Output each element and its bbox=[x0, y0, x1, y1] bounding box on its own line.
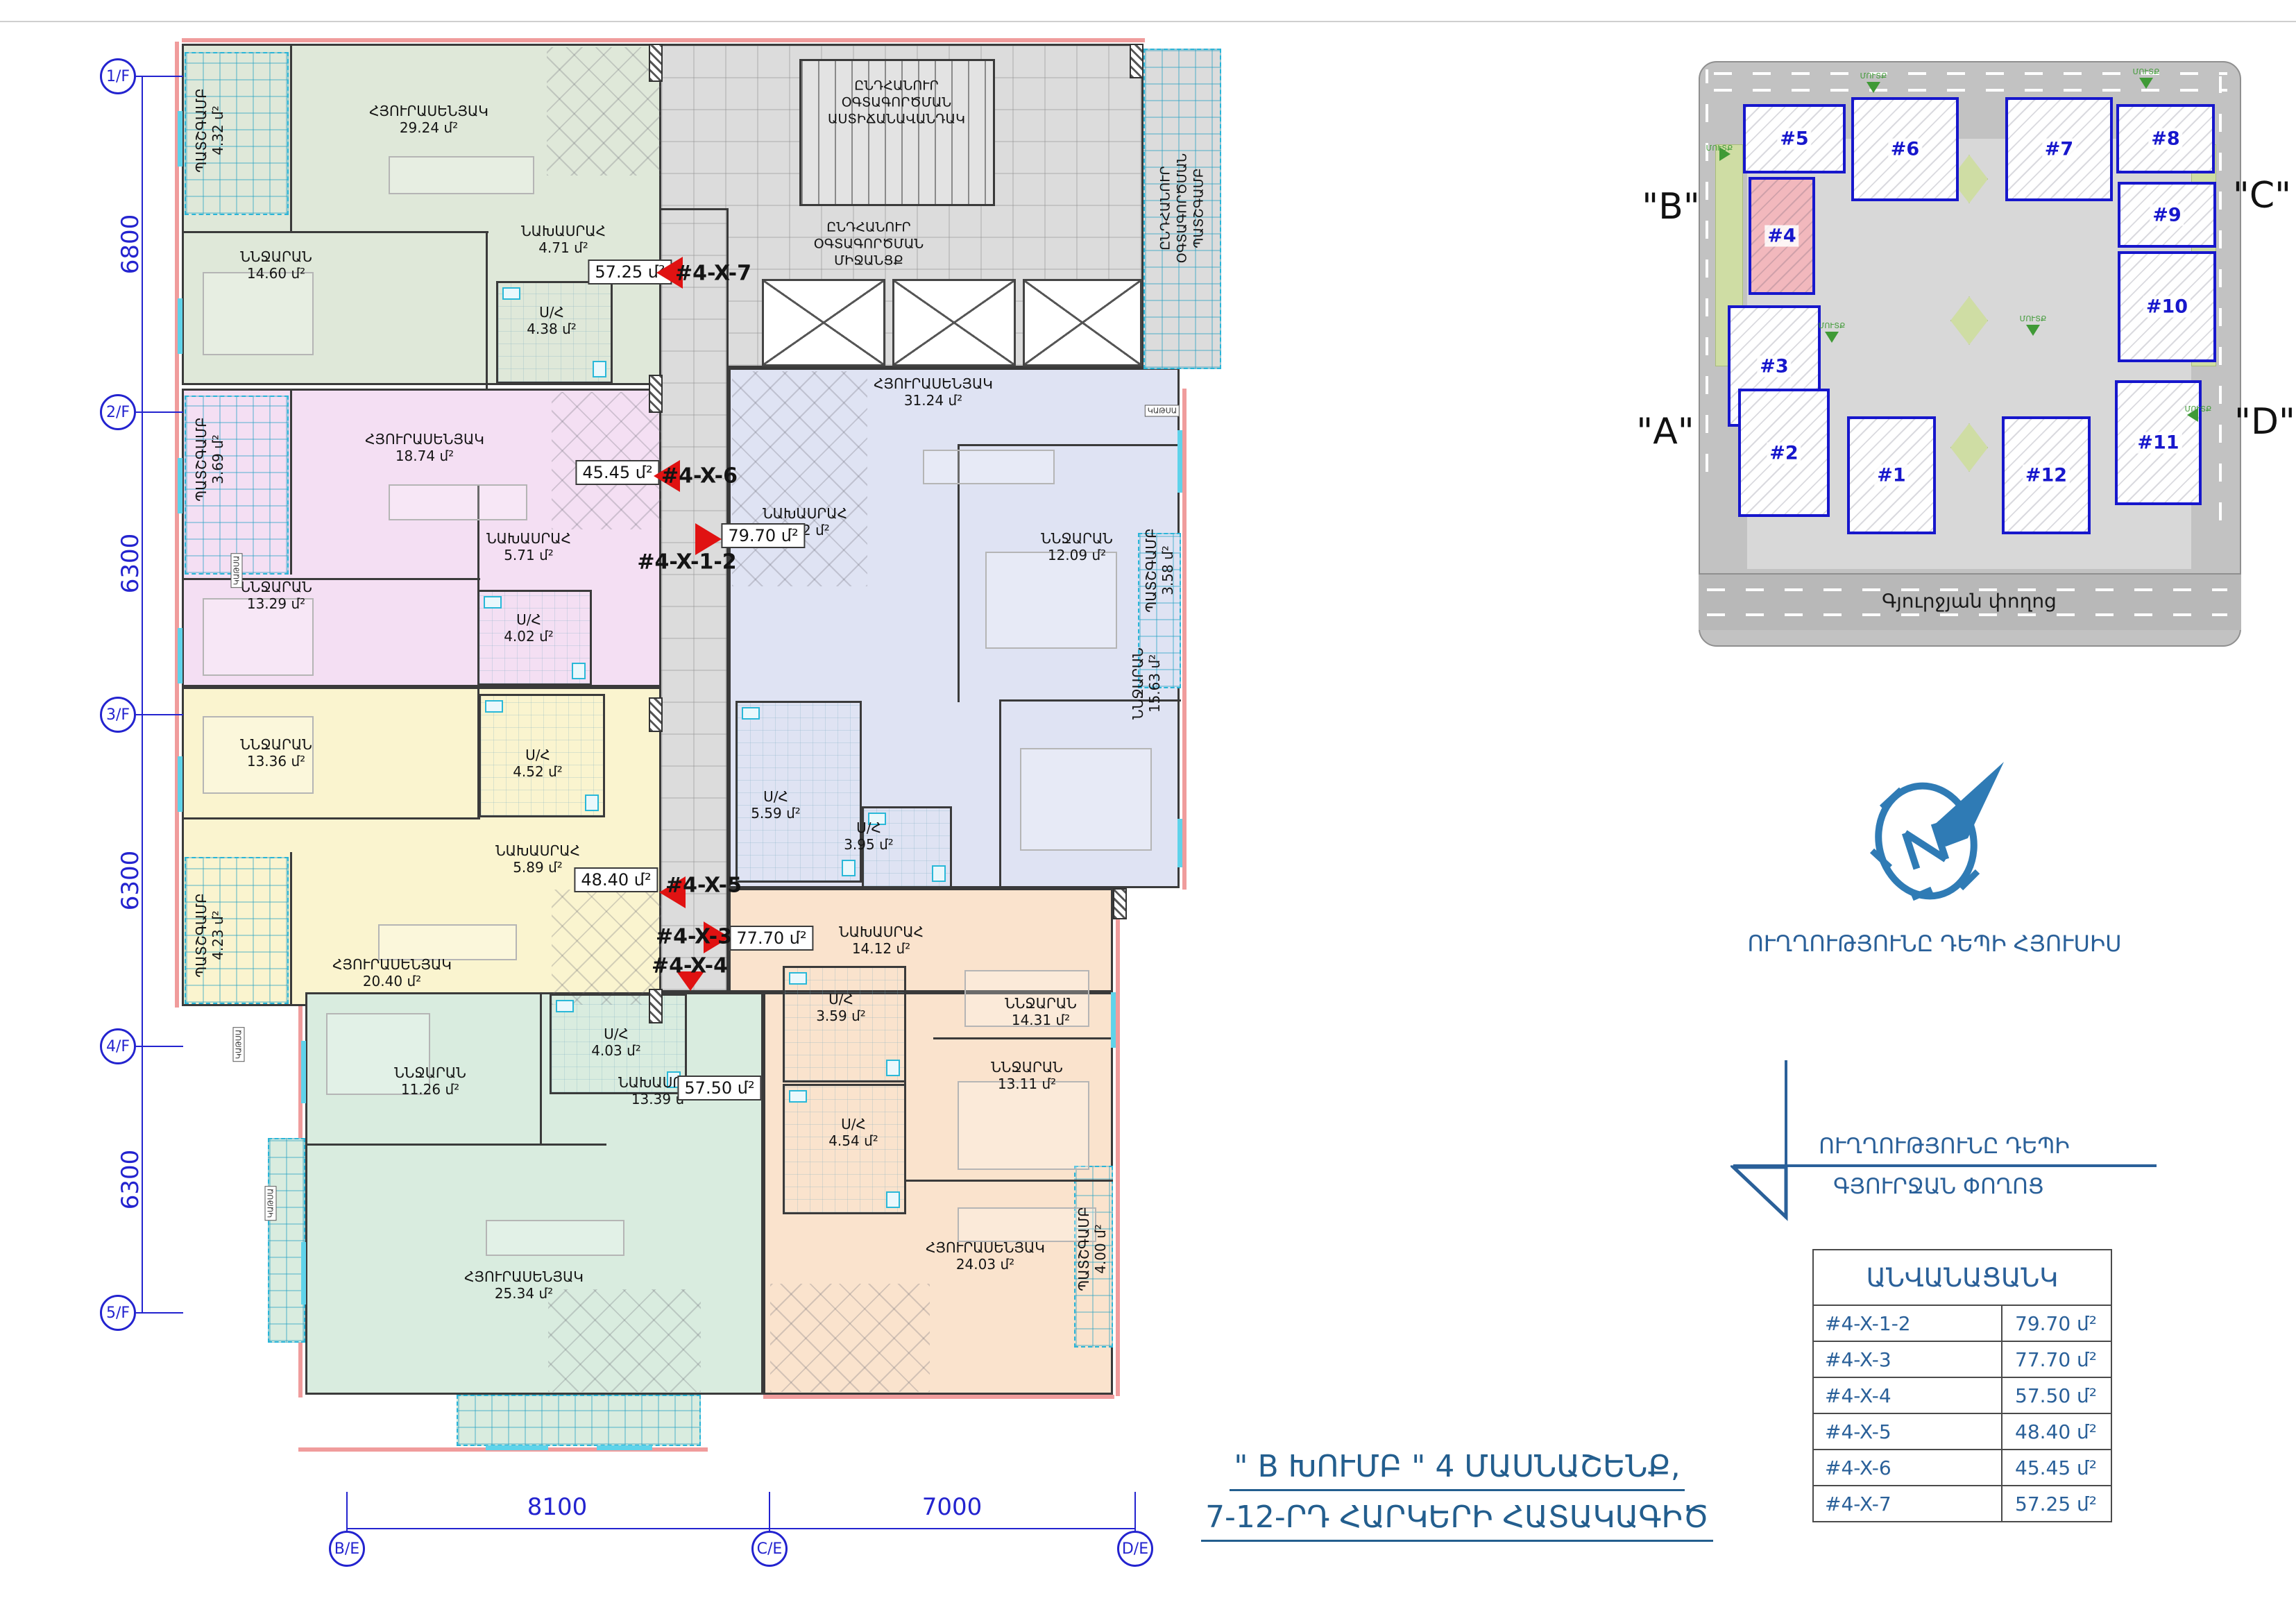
exterior-wall-accent bbox=[763, 1395, 1114, 1399]
axis-tick bbox=[136, 714, 183, 715]
dimension-label: 6300 bbox=[117, 851, 144, 911]
apartment-total-area: 79.70 մ² bbox=[721, 523, 805, 548]
room-label: Ս/Հ4.02 մ² bbox=[504, 611, 554, 645]
site-building-label: #10 bbox=[2143, 296, 2191, 318]
dimension-label: 6800 bbox=[117, 214, 144, 275]
site-building-label: #1 bbox=[1874, 465, 1908, 486]
interior-wall bbox=[904, 966, 906, 1181]
unit-id-label: #4-X-7 bbox=[675, 262, 751, 286]
room-name: Ս/Հ bbox=[504, 611, 554, 628]
street-direction-arrowhead bbox=[1730, 1164, 1790, 1221]
interior-wall bbox=[540, 994, 542, 1145]
room-area: 13.29 մ² bbox=[240, 595, 312, 612]
room-label: ՆՆՋԱՐԱՆ13.36 մ² bbox=[240, 736, 312, 770]
kitchen-floor-hatch bbox=[547, 47, 661, 176]
room-area: 13.36 մ² bbox=[240, 753, 312, 770]
window-marker bbox=[597, 1445, 652, 1450]
axis-tick bbox=[1134, 1492, 1136, 1531]
room-area: 5.59 մ² bbox=[751, 805, 801, 822]
room-name: ՊԱՏՇԳԱՄԲ bbox=[1143, 528, 1159, 612]
interior-wall bbox=[999, 699, 1001, 888]
furniture-outline bbox=[1020, 748, 1152, 851]
window-marker bbox=[486, 1445, 548, 1450]
room-label: ՆՆՋԱՐԱՆ13.11 մ² bbox=[991, 1059, 1063, 1092]
street-direction-line2: ԳՅՈՒՐՋԱՆ ՓՈՂՈՑ bbox=[1833, 1174, 2044, 1199]
site-building-label: #2 bbox=[1767, 442, 1801, 464]
room-label: ՆՆՋԱՐԱՆ11.26 մ² bbox=[394, 1064, 466, 1098]
sink-icon bbox=[556, 1000, 574, 1012]
axis-marker-5-F: 5/F bbox=[100, 1295, 136, 1331]
exterior-wall-accent bbox=[175, 42, 179, 1008]
axis-tick bbox=[136, 1046, 183, 1047]
structural-column bbox=[1113, 888, 1127, 919]
room-area: 3.95 մ² bbox=[844, 836, 894, 853]
room-label: ՀՅՈՒՐԱՍԵՆՅԱԿ20.40 մ² bbox=[332, 956, 452, 989]
dimension-label: 8100 bbox=[527, 1493, 588, 1521]
legend-row: #4-X-1-279.70 մ² bbox=[1814, 1306, 2111, 1342]
room-label: ՆՆՋԱՐԱՆ13.29 մ² bbox=[240, 579, 312, 612]
unit-id-label: #4-X-6 bbox=[661, 464, 738, 488]
room-label: ՊԱՏՇԳԱՄԲ3.58 մ² bbox=[1143, 528, 1176, 612]
room-area: 4.03 մ² bbox=[591, 1042, 641, 1059]
window-marker bbox=[1177, 430, 1182, 493]
entrance-text: ՄՈՒՏՔ bbox=[2020, 314, 2047, 323]
apartment-total-area: 45.45 մ² bbox=[575, 460, 659, 485]
room-label: Ս/Հ3.59 մ² bbox=[816, 991, 866, 1024]
room-label: Ս/Հ4.54 մ² bbox=[828, 1116, 878, 1149]
room-label: ՀՅՈՒՐԱՍԵՆՅԱԿ31.24 մ² bbox=[874, 375, 993, 409]
room-name: ՊԱՏՇԳԱՄԲ bbox=[193, 417, 210, 501]
room-area: 4.71 մ² bbox=[521, 239, 606, 256]
balcony-area bbox=[268, 1138, 305, 1343]
legend-header: ԱՆՎԱՆԱՑԱՆԿ bbox=[1814, 1250, 2111, 1306]
interior-wall bbox=[933, 1037, 1113, 1039]
quadrant-label: "D" bbox=[2234, 401, 2295, 443]
room-label: Ս/Հ3.95 մ² bbox=[844, 819, 894, 853]
compass-icon bbox=[1848, 749, 2022, 923]
room-name: ՊԱՏՇԳԱՄԲ bbox=[193, 88, 210, 172]
legend-row: #4-X-757.25 մ² bbox=[1814, 1486, 2111, 1521]
room-area: 4.02 մ² bbox=[504, 628, 554, 645]
room-name: Ս/Հ bbox=[527, 304, 577, 321]
room-name: ՀՅՈՒՐԱՍԵՆՅԱԿ bbox=[926, 1239, 1045, 1256]
furniture-outline bbox=[486, 1220, 624, 1256]
window-marker bbox=[1177, 819, 1182, 867]
room-label: ՆԱԽԱՍՐԱՀ5.89 մ² bbox=[495, 842, 580, 876]
sink-icon bbox=[789, 1090, 807, 1103]
quadrant-label: "C" bbox=[2233, 175, 2291, 216]
furniture-outline bbox=[985, 552, 1117, 649]
toilet-icon bbox=[842, 860, 856, 876]
room-name: ՀՅՈՒՐԱՍԵՆՅԱԿ bbox=[332, 956, 452, 973]
dimension-label: 7000 bbox=[922, 1493, 983, 1521]
road-lane-dashes bbox=[1714, 89, 2227, 92]
boiler-label: ԿԱԹՍԱ bbox=[231, 553, 243, 588]
legend-row: #4-X-457.50 մ² bbox=[1814, 1378, 2111, 1414]
entrance-arrow-icon bbox=[1825, 332, 1839, 343]
axis-marker-1-F: 1/F bbox=[100, 58, 136, 94]
room-label: ՆԱԽԱՍՐԱՀ5.71 մ² bbox=[486, 530, 571, 563]
boiler-label: ԿԱԹՍԱ bbox=[233, 1027, 245, 1062]
structural-column bbox=[649, 697, 663, 732]
room-name: Ս/Հ bbox=[751, 788, 801, 805]
north-direction-label: ՈՒՂՂՈՒԹՅՈՒՆԸ ԴԵՊԻ ՀՅՈՒՍԻՍ bbox=[1748, 931, 2122, 957]
room-area: 3.59 մ² bbox=[816, 1008, 866, 1024]
room-label: ՀՅՈՒՐԱՍԵՆՅԱԿ24.03 մ² bbox=[926, 1239, 1045, 1273]
room-label: ՊԱՏՇԳԱՄԲ4.23 մ² bbox=[193, 893, 226, 977]
room-name: Ս/Հ bbox=[591, 1026, 641, 1042]
interior-wall bbox=[290, 852, 292, 1006]
interior-wall bbox=[958, 444, 1181, 446]
room-area: 29.24 մ² bbox=[369, 119, 488, 136]
interior-wall bbox=[182, 817, 480, 819]
unit-id-label: #4-X-5 bbox=[665, 874, 742, 898]
legend-unit-id: #4-X-1-2 bbox=[1814, 1306, 2002, 1341]
room-area: 4.23 մ² bbox=[210, 893, 226, 977]
exterior-wall-accent bbox=[182, 38, 665, 42]
furniture-outline bbox=[923, 450, 1055, 484]
room-area: 4.38 մ² bbox=[527, 321, 577, 337]
elevator-shaft bbox=[1023, 279, 1142, 366]
structural-column bbox=[649, 375, 663, 413]
apartment-total-area: 57.50 մ² bbox=[677, 1076, 761, 1101]
room-area: 12.09 մ² bbox=[1041, 547, 1113, 563]
room-area: 13.11 մ² bbox=[991, 1076, 1063, 1092]
room-area: 3.69 մ² bbox=[210, 417, 226, 501]
room-name: ՀՅՈՒՐԱՍԵՆՅԱԿ bbox=[369, 103, 488, 119]
room-name: ՀՅՈՒՐԱՍԵՆՅԱԿ bbox=[464, 1268, 584, 1285]
interior-wall bbox=[182, 578, 480, 580]
room-name: ՆՆՋԱՐԱՆ bbox=[240, 579, 312, 595]
furniture-outline bbox=[389, 484, 527, 520]
room-label: ՆԱԽԱՍՐԱՀ4.71 մ² bbox=[521, 223, 606, 256]
interior-wall bbox=[290, 44, 292, 232]
sheet-canvas: ԸՆԴՀԱՆՈՒՐ ՕԳՏԱԳՈՐԾՄԱՆ ԱՍՏԻՃԱՆԱՎԱՆԴԱԿԸՆԴՀ… bbox=[0, 0, 2296, 1623]
exterior-wall-accent bbox=[1116, 891, 1120, 1396]
legend-table: ԱՆՎԱՆԱՑԱՆԿ #4-X-1-279.70 մ²#4-X-377.70 մ… bbox=[1812, 1249, 2112, 1522]
room-area: 5.89 մ² bbox=[495, 859, 580, 876]
window-marker bbox=[178, 458, 182, 513]
entrance-text: ՄՈՒՏՔ bbox=[2185, 405, 2212, 414]
room-area: 20.40 մ² bbox=[332, 973, 452, 989]
title-line2: 7-12-ՐԴ ՀԱՐԿԵՐԻ ՀԱՏԱԿԱԳԻԾ bbox=[1201, 1499, 1713, 1542]
room-area: 18.74 մ² bbox=[365, 448, 484, 464]
room-name: ՆՆՋԱՐԱՆ bbox=[991, 1059, 1063, 1076]
site-building-label: #8 bbox=[2148, 128, 2182, 150]
sink-icon bbox=[485, 700, 503, 713]
room-name: ՊԱՏՇԳԱՄԲ bbox=[193, 893, 210, 977]
room-area: 14.60 մ² bbox=[240, 265, 312, 282]
boiler-label: ԿԱԹՍԱ bbox=[265, 1186, 277, 1221]
room-area: 4.00 մ² bbox=[1092, 1207, 1109, 1291]
unit-id-label: #4-X-4 bbox=[652, 954, 728, 978]
bottom-axis-line bbox=[347, 1528, 1135, 1529]
common-balcony-label: ԸՆԴՀԱՆՈՒՐ ՕԳՏԱԳՈՐԾՄԱՆ ՊԱՏՇԳԱՄԲ bbox=[1157, 153, 1207, 263]
furniture-outline bbox=[389, 156, 534, 194]
room-area: 5.71 մ² bbox=[486, 547, 571, 563]
title-line1: " B ԽՈՒՄԲ " 4 ՄԱՍՆԱՇԵՆՔ, bbox=[1230, 1449, 1684, 1491]
window-marker bbox=[178, 628, 182, 683]
room-label: Ս/Հ4.52 մ² bbox=[513, 747, 563, 780]
room-name: ՆԱԽԱՍՐԱՀ bbox=[495, 842, 580, 859]
room-name: Ս/Հ bbox=[844, 819, 894, 836]
site-building-label: #11 bbox=[2134, 432, 2182, 454]
elevator-shaft bbox=[762, 279, 885, 366]
site-building-label: #4 bbox=[1764, 226, 1798, 247]
axis-tick bbox=[136, 76, 183, 77]
axis-marker-B-E: B/E bbox=[329, 1531, 365, 1567]
entrance-arrow-icon bbox=[2139, 78, 2153, 89]
kitchen-floor-hatch bbox=[548, 1289, 701, 1392]
room-label: Ս/Հ5.59 մ² bbox=[751, 788, 801, 822]
legend-rows: #4-X-1-279.70 մ²#4-X-377.70 մ²#4-X-457.5… bbox=[1814, 1306, 2111, 1521]
room-name: ՆԱԽԱՍՐԱՀ bbox=[486, 530, 571, 547]
street-direction-hline bbox=[1733, 1164, 2157, 1167]
corridor-label: ԸՆԴՀԱՆՈՒՐ ՕԳՏԱԳՈՐԾՄԱՆ ՄԻՋԱՆՑՔ bbox=[814, 219, 924, 269]
room-label: ՀՅՈՒՐԱՍԵՆՅԱԿ29.24 մ² bbox=[369, 103, 488, 136]
kitchen-floor-hatch bbox=[732, 371, 867, 586]
room-name: ՀՅՈՒՐԱՍԵՆՅԱԿ bbox=[365, 431, 484, 448]
site-building-label: #6 bbox=[1888, 139, 1922, 160]
quadrant-label: "B" bbox=[1642, 186, 1700, 228]
road-lane-dashes bbox=[2219, 76, 2222, 520]
legend-row: #4-X-645.45 մ² bbox=[1814, 1450, 2111, 1486]
boiler-label: ԿԱԹՍԱ bbox=[1145, 405, 1180, 417]
furniture-outline bbox=[378, 924, 517, 960]
toilet-icon bbox=[585, 794, 599, 811]
window-marker bbox=[1111, 992, 1116, 1048]
room-label: ՆՆՋԱՐԱՆ15.63 մ² bbox=[1130, 647, 1163, 720]
axis-tick bbox=[136, 1312, 183, 1314]
entrance-text: ՄՈՒՏՔ bbox=[2133, 67, 2160, 76]
balcony-area bbox=[457, 1395, 701, 1446]
room-name: ՆՆՋԱՐԱՆ bbox=[394, 1064, 466, 1081]
legend-unit-area: 77.70 մ² bbox=[2002, 1342, 2111, 1377]
exterior-wall-accent bbox=[659, 38, 1145, 42]
toilet-icon bbox=[932, 865, 946, 882]
room-area: 15.63 մ² bbox=[1146, 647, 1163, 720]
elevator-shaft bbox=[892, 279, 1016, 366]
dimension-label: 6300 bbox=[117, 534, 144, 594]
toilet-icon bbox=[886, 1060, 900, 1076]
compass bbox=[1848, 749, 2022, 923]
legend-unit-id: #4-X-4 bbox=[1814, 1378, 2002, 1413]
room-area: 31.24 մ² bbox=[874, 392, 993, 409]
road-lane-dashes bbox=[1706, 69, 1708, 472]
room-label: ՆՆՋԱՐԱՆ12.09 մ² bbox=[1041, 530, 1113, 563]
kitchen-floor-hatch bbox=[552, 890, 661, 1005]
apartment-total-area: 77.70 մ² bbox=[729, 926, 813, 951]
entrance-text: ՄՈՒՏՔ bbox=[1860, 71, 1887, 80]
legend-row: #4-X-548.40 մ² bbox=[1814, 1414, 2111, 1450]
window-marker bbox=[178, 756, 182, 812]
legend-unit-id: #4-X-7 bbox=[1814, 1486, 2002, 1521]
room-label: ՊԱՏՇԳԱՄԲ4.32 մ² bbox=[193, 88, 226, 172]
interior-wall bbox=[305, 1144, 606, 1146]
room-area: 14.31 մ² bbox=[1005, 1012, 1077, 1028]
legend-unit-id: #4-X-6 bbox=[1814, 1450, 2002, 1485]
bathroom-room bbox=[783, 1084, 906, 1214]
room-area: 3.58 մ² bbox=[1159, 528, 1176, 612]
room-label: Ս/Հ4.38 մ² bbox=[527, 304, 577, 337]
entrance-text: ՄՈՒՏՔ bbox=[1819, 321, 1846, 330]
room-label: ՆՆՋԱՐԱՆ14.31 մ² bbox=[1005, 995, 1077, 1028]
room-name: ՆՆՋԱՐԱՆ bbox=[240, 248, 312, 265]
room-area: 25.34 մ² bbox=[464, 1285, 584, 1302]
room-label: ՆՆՋԱՐԱՆ14.60 մ² bbox=[240, 248, 312, 282]
site-building-label: #9 bbox=[2150, 204, 2184, 226]
legend-row: #4-X-377.70 մ² bbox=[1814, 1342, 2111, 1378]
room-area: 4.54 մ² bbox=[828, 1132, 878, 1149]
interior-wall bbox=[477, 687, 479, 819]
room-name: ՆՆՋԱՐԱՆ bbox=[1041, 530, 1113, 547]
room-name: ՆԱԽԱՍՐԱՀ bbox=[763, 505, 847, 522]
staircase-label: ԸՆԴՀԱՆՈՒՐ ՕԳՏԱԳՈՐԾՄԱՆ ԱՍՏԻՃԱՆԱՎԱՆԴԱԿ bbox=[828, 78, 965, 127]
street-name-label: Գյուրջյան փողոց bbox=[1882, 590, 2057, 613]
structural-column bbox=[649, 44, 663, 82]
axis-tick bbox=[136, 411, 183, 413]
sink-icon bbox=[742, 707, 760, 720]
legend-unit-id: #4-X-5 bbox=[1814, 1414, 2002, 1449]
unit-id-label: #4-X-3 bbox=[656, 925, 732, 949]
legend-unit-area: 57.25 մ² bbox=[2002, 1486, 2111, 1521]
room-name: ՆԱԽԱՍՐԱՀ bbox=[839, 924, 924, 940]
room-name: ՊԱՏՇԳԱՄԲ bbox=[1075, 1207, 1092, 1291]
site-walkway bbox=[1939, 139, 2000, 569]
window-marker bbox=[301, 1041, 306, 1103]
legend-unit-area: 57.50 մ² bbox=[2002, 1378, 2111, 1413]
axis-marker-3-F: 3/F bbox=[100, 697, 136, 733]
bathroom-room bbox=[783, 966, 906, 1082]
unit-id-label: #4-X-1-2 bbox=[637, 550, 736, 575]
room-name: Ս/Հ bbox=[828, 1116, 878, 1132]
road-lane-dashes bbox=[1707, 613, 2227, 616]
site-building-label: #12 bbox=[2023, 465, 2070, 486]
axis-marker-4-F: 4/F bbox=[100, 1028, 136, 1064]
legend-unit-id: #4-X-3 bbox=[1814, 1342, 2002, 1377]
axis-marker-2-F: 2/F bbox=[100, 394, 136, 430]
sink-icon bbox=[484, 596, 502, 609]
window-marker bbox=[301, 1242, 306, 1305]
axis-tick bbox=[769, 1492, 770, 1531]
room-name: ՆԱԽԱՍՐԱՀ bbox=[521, 223, 606, 239]
exterior-wall-accent bbox=[1182, 389, 1187, 890]
axis-marker-C-E: C/E bbox=[751, 1531, 788, 1567]
furniture-outline bbox=[203, 272, 314, 355]
room-name: ՆՆՋԱՐԱՆ bbox=[1005, 995, 1077, 1012]
room-area: 4.52 մ² bbox=[513, 763, 563, 780]
room-name: ՆՆՋԱՐԱՆ bbox=[1130, 647, 1146, 720]
toilet-icon bbox=[572, 663, 586, 679]
room-area: 24.03 մ² bbox=[926, 1256, 1045, 1273]
site-building-label: #5 bbox=[1777, 128, 1811, 150]
furniture-outline bbox=[958, 1081, 1089, 1170]
room-label: ՊԱՏՇԳԱՄԲ4.00 մ² bbox=[1075, 1207, 1109, 1291]
compass-needle bbox=[1932, 762, 2004, 847]
room-name: ՀՅՈՒՐԱՍԵՆՅԱԿ bbox=[874, 375, 993, 392]
room-area: 14.12 մ² bbox=[839, 940, 924, 957]
street-direction-line1: ՈՒՂՂՈՒԹՅՈՒՆԸ ԴԵՊԻ bbox=[1819, 1134, 2069, 1159]
interior-wall bbox=[290, 389, 292, 575]
kitchen-floor-hatch bbox=[770, 1284, 930, 1392]
room-name: Ս/Հ bbox=[513, 747, 563, 763]
axis-marker-D-E: D/E bbox=[1117, 1531, 1153, 1567]
toilet-icon bbox=[886, 1191, 900, 1208]
legend-unit-area: 79.70 մ² bbox=[2002, 1306, 2111, 1341]
room-area: 4.32 մ² bbox=[210, 88, 226, 172]
apartment-total-area: 48.40 մ² bbox=[574, 867, 658, 892]
axis-tick bbox=[346, 1492, 348, 1531]
entrance-arrow-icon bbox=[2026, 325, 2040, 336]
room-label: ՆԱԽԱՍՐԱՀ14.12 մ² bbox=[839, 924, 924, 957]
room-name: ՆՆՋԱՐԱՆ bbox=[240, 736, 312, 753]
quadrant-label: "A" bbox=[1636, 411, 1694, 452]
entrance-text: ՄՈՒՏՔ bbox=[1706, 144, 1733, 153]
title-block: " B ԽՈՒՄԲ " 4 ՄԱՍՆԱՇԵՆՔ, 7-12-ՐԴ ՀԱՐԿԵՐԻ… bbox=[1193, 1449, 1721, 1542]
room-label: ՊԱՏՇԳԱՄԲ3.69 մ² bbox=[193, 417, 226, 501]
room-label: ՀՅՈՒՐԱՍԵՆՅԱԿ18.74 մ² bbox=[365, 431, 484, 464]
interior-wall bbox=[182, 231, 488, 233]
structural-column bbox=[649, 989, 663, 1023]
toilet-icon bbox=[593, 361, 606, 377]
structural-column bbox=[1130, 44, 1143, 78]
room-label: ՀՅՈՒՐԱՍԵՆՅԱԿ25.34 մ² bbox=[464, 1268, 584, 1302]
legend-unit-area: 48.40 մ² bbox=[2002, 1414, 2111, 1449]
site-building-label: #7 bbox=[2042, 139, 2076, 160]
window-marker bbox=[178, 298, 182, 354]
site-plan: Գյուրջյան փողոց#5#6#7#8#4#9#3#10#2#11#1#… bbox=[1651, 42, 2296, 666]
room-label: Ս/Հ4.03 մ² bbox=[591, 1026, 641, 1059]
room-name: Ս/Հ bbox=[816, 991, 866, 1008]
interior-wall bbox=[904, 1180, 1113, 1182]
room-area: 11.26 մ² bbox=[394, 1081, 466, 1098]
sink-icon bbox=[789, 972, 807, 985]
window-marker bbox=[178, 111, 182, 167]
site-building-label: #3 bbox=[1757, 355, 1791, 377]
legend-unit-area: 45.45 մ² bbox=[2002, 1450, 2111, 1485]
interior-wall bbox=[486, 231, 488, 389]
dimension-label: 6300 bbox=[117, 1150, 144, 1210]
floor-plan: ԸՆԴՀԱՆՈՒՐ ՕԳՏԱԳՈՐԾՄԱՆ ԱՍՏԻՃԱՆԱՎԱՆԴԱԿԸՆԴՀ… bbox=[0, 0, 1318, 1623]
sink-icon bbox=[502, 287, 520, 300]
entrance-arrow-icon bbox=[1866, 82, 1880, 93]
